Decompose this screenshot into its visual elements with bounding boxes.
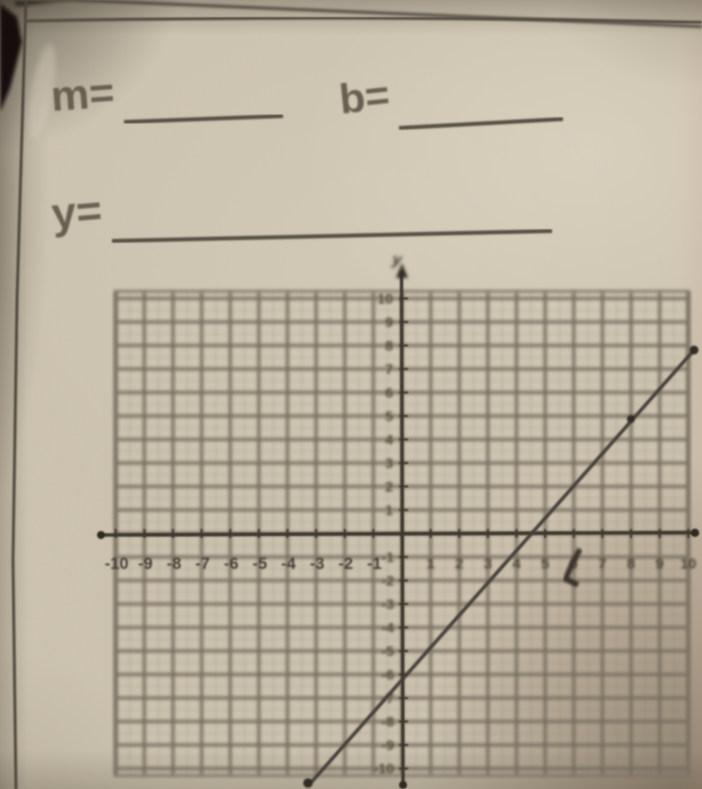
svg-text:-8: -8 — [382, 714, 395, 730]
svg-text:4: 4 — [385, 432, 393, 448]
svg-text:8: 8 — [627, 557, 635, 573]
svg-text:-10: -10 — [105, 555, 129, 573]
svg-text:7: 7 — [598, 557, 606, 573]
svg-text:4: 4 — [512, 557, 520, 573]
svg-text:-3: -3 — [310, 555, 325, 573]
svg-text:-6: -6 — [382, 667, 395, 683]
svg-text:5: 5 — [541, 557, 549, 573]
svg-text:3: 3 — [484, 557, 492, 573]
svg-text:9: 9 — [656, 557, 664, 573]
svg-text:-7: -7 — [195, 555, 210, 573]
svg-text:-8: -8 — [167, 555, 182, 573]
svg-text:2: 2 — [455, 557, 463, 573]
svg-text:-3: -3 — [382, 596, 395, 612]
svg-text:10: 10 — [680, 557, 696, 573]
svg-text:-1: -1 — [367, 555, 382, 573]
svg-text:7: 7 — [385, 361, 393, 377]
svg-text:8: 8 — [385, 338, 393, 354]
svg-text:-2: -2 — [382, 573, 395, 589]
svg-text:10: 10 — [377, 291, 393, 307]
svg-text:6: 6 — [385, 385, 393, 401]
svg-text:-9: -9 — [138, 555, 153, 573]
svg-text:-6: -6 — [224, 555, 239, 573]
svg-text:-5: -5 — [253, 555, 268, 573]
svg-text:2: 2 — [385, 479, 393, 495]
svg-text:y=: y= — [50, 186, 104, 239]
svg-text:-2: -2 — [338, 555, 353, 573]
svg-text:5: 5 — [385, 408, 393, 424]
svg-text:y: y — [390, 251, 403, 269]
svg-text:-7: -7 — [382, 690, 395, 706]
svg-text:-9: -9 — [382, 737, 395, 753]
svg-text:m=: m= — [49, 69, 116, 121]
svg-text:-4: -4 — [382, 620, 395, 636]
svg-text:3: 3 — [385, 455, 393, 471]
svg-text:6: 6 — [570, 557, 578, 573]
svg-text:-4: -4 — [281, 555, 296, 573]
svg-text:-5: -5 — [382, 643, 395, 659]
svg-text:1: 1 — [385, 502, 393, 518]
svg-text:1: 1 — [427, 557, 435, 573]
svg-text:b=: b= — [337, 71, 392, 123]
svg-text:-10: -10 — [374, 761, 394, 777]
svg-text:9: 9 — [385, 314, 393, 330]
svg-text:-1: -1 — [382, 549, 395, 565]
